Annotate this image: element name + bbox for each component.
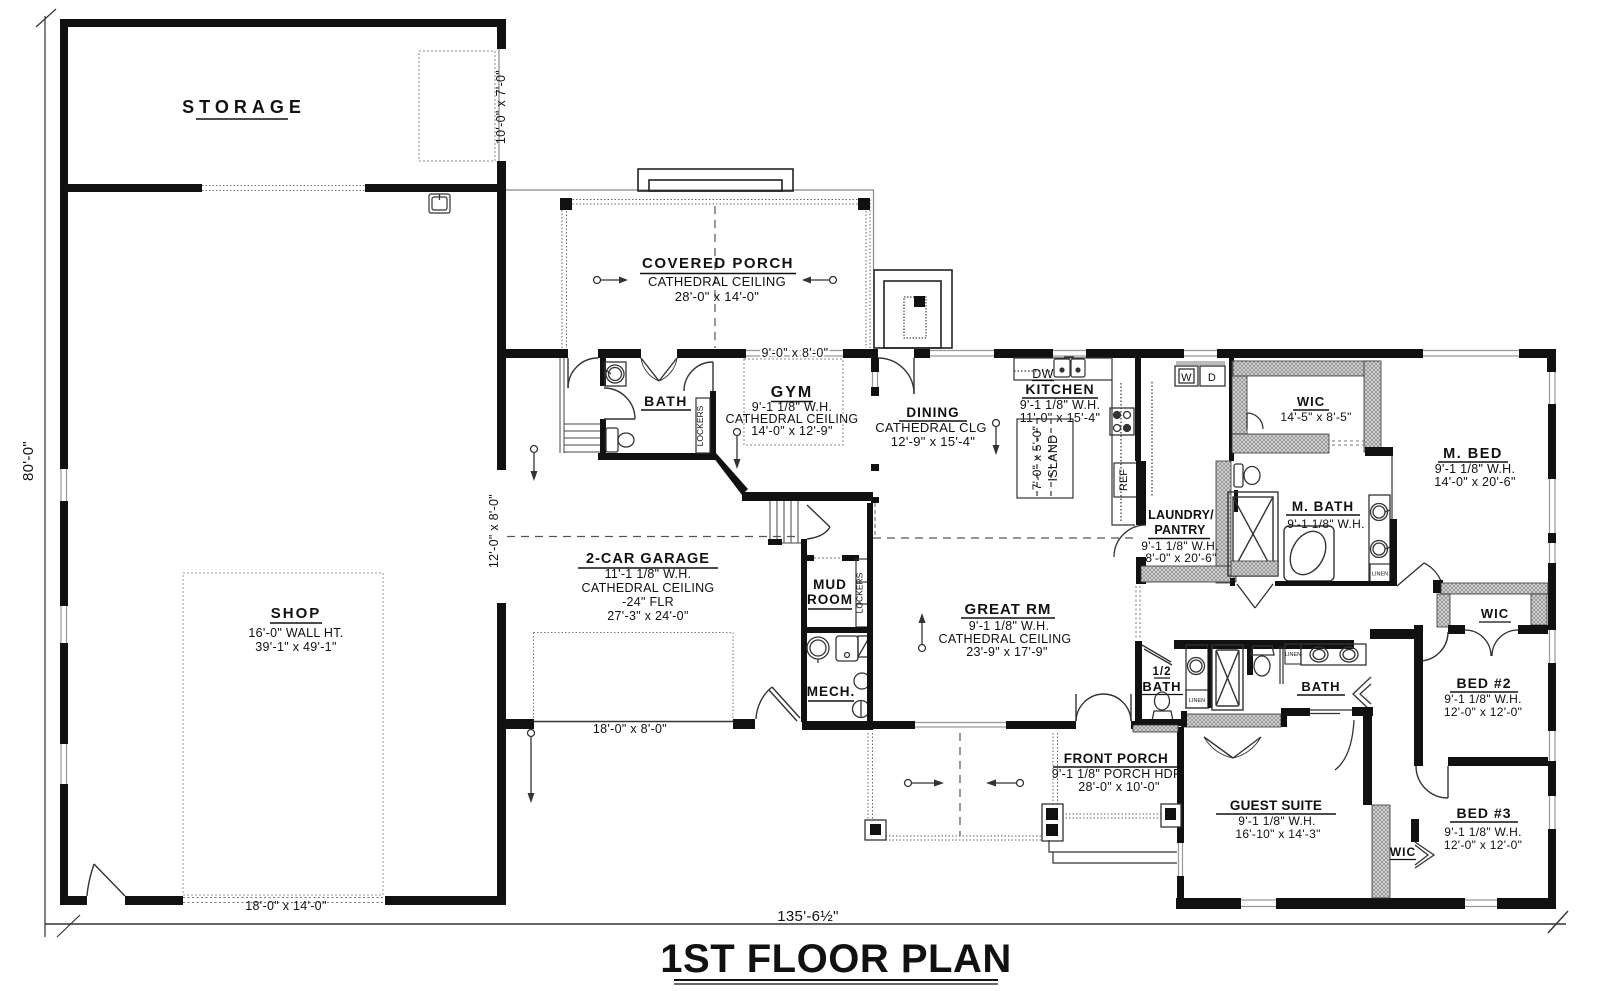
svg-text:9'-1 1/8" W.H.: 9'-1 1/8" W.H. bbox=[1287, 517, 1364, 531]
svg-text:14'-5" x 8'-5": 14'-5" x 8'-5" bbox=[1280, 410, 1351, 424]
svg-text:14'-0" x 20'-6": 14'-0" x 20'-6" bbox=[1434, 475, 1515, 489]
svg-text:14'-0" x 12'-9": 14'-0" x 12'-9" bbox=[751, 424, 832, 438]
svg-text:BATH: BATH bbox=[1301, 679, 1340, 694]
svg-text:11'-0" x 15'-4": 11'-0" x 15'-4" bbox=[1020, 411, 1100, 425]
svg-text:COVERED PORCH: COVERED PORCH bbox=[642, 255, 794, 272]
svg-text:LAUNDRY/: LAUNDRY/ bbox=[1148, 508, 1214, 522]
svg-text:CATHEDRAL CEILING: CATHEDRAL CEILING bbox=[939, 632, 1072, 646]
svg-text:GUEST SUITE: GUEST SUITE bbox=[1230, 798, 1322, 813]
svg-text:28'-0" x 10'-0": 28'-0" x 10'-0" bbox=[1078, 780, 1159, 794]
svg-text:CATHEDRAL CEILING: CATHEDRAL CEILING bbox=[648, 274, 786, 289]
svg-text:9'-1 1/8" W.H.: 9'-1 1/8" W.H. bbox=[1238, 814, 1315, 828]
svg-text:ROOM: ROOM bbox=[807, 592, 853, 607]
svg-text:ISLAND: ISLAND bbox=[1046, 435, 1060, 482]
svg-text:9'-1 1/8" W.H.: 9'-1 1/8" W.H. bbox=[969, 619, 1050, 633]
svg-text:MUD: MUD bbox=[813, 577, 847, 592]
svg-text:W: W bbox=[1181, 372, 1192, 384]
svg-text:28'-0" x 14'-0": 28'-0" x 14'-0" bbox=[675, 289, 760, 304]
svg-text:WIC: WIC bbox=[1481, 606, 1509, 621]
svg-text:12'-0" x 12'-0": 12'-0" x 12'-0" bbox=[1444, 705, 1522, 719]
svg-text:D: D bbox=[1208, 372, 1216, 384]
svg-text:LINEN: LINEN bbox=[1285, 652, 1301, 658]
svg-text:BED #2: BED #2 bbox=[1456, 675, 1511, 691]
svg-text:FRONT PORCH: FRONT PORCH bbox=[1064, 751, 1169, 766]
svg-text:REF: REF bbox=[1118, 469, 1130, 491]
svg-text:GREAT RM: GREAT RM bbox=[965, 601, 1052, 618]
svg-text:BED #3: BED #3 bbox=[1456, 805, 1511, 821]
svg-text:16'-10" x 14'-3": 16'-10" x 14'-3" bbox=[1235, 827, 1320, 841]
svg-text:DW: DW bbox=[1032, 367, 1053, 381]
svg-text:CATHEDRAL CLG: CATHEDRAL CLG bbox=[875, 420, 987, 435]
svg-text:LOCKERS: LOCKERS bbox=[695, 405, 705, 446]
svg-text:8'-0" x 20'-6": 8'-0" x 20'-6" bbox=[1145, 551, 1216, 565]
svg-text:LINEN: LINEN bbox=[1372, 572, 1388, 578]
svg-text:10'-0" x 7'-0": 10'-0" x 7'-0" bbox=[494, 70, 508, 144]
svg-text:SHOP: SHOP bbox=[271, 605, 322, 622]
svg-text:M. BED: M. BED bbox=[1443, 446, 1503, 462]
svg-text:80'-0": 80'-0" bbox=[20, 441, 37, 481]
svg-text:12'-9" x 15'-4": 12'-9" x 15'-4" bbox=[891, 434, 976, 449]
svg-text:2-CAR GARAGE: 2-CAR GARAGE bbox=[586, 551, 710, 567]
svg-text:12'-0" x 8'-0": 12'-0" x 8'-0" bbox=[487, 494, 501, 568]
svg-text:39'-1" x 49'-1": 39'-1" x 49'-1" bbox=[255, 640, 336, 654]
svg-text:BATH: BATH bbox=[644, 393, 688, 409]
svg-text:7'-0" x 5'-0": 7'-0" x 5'-0" bbox=[1030, 426, 1044, 490]
svg-text:WIC: WIC bbox=[1297, 394, 1325, 409]
svg-text:9'-1 1/8" W.H.: 9'-1 1/8" W.H. bbox=[1435, 462, 1516, 476]
svg-text:18'-0" x 8'-0": 18'-0" x 8'-0" bbox=[593, 722, 667, 736]
svg-text:MECH.: MECH. bbox=[807, 684, 856, 699]
svg-text:LINEN: LINEN bbox=[1189, 698, 1205, 704]
svg-text:1ST FLOOR PLAN: 1ST FLOOR PLAN bbox=[660, 937, 1011, 981]
svg-text:LOCKERS: LOCKERS bbox=[855, 572, 865, 613]
svg-text:23'-9" x 17'-9": 23'-9" x 17'-9" bbox=[966, 645, 1047, 659]
svg-text:WIC: WIC bbox=[1390, 845, 1416, 859]
svg-text:9'-1 1/8" W.H.: 9'-1 1/8" W.H. bbox=[1444, 692, 1521, 706]
svg-text:18'-0" x 14'-0": 18'-0" x 14'-0" bbox=[245, 899, 326, 913]
svg-text:GYM: GYM bbox=[771, 384, 813, 401]
svg-text:KITCHEN: KITCHEN bbox=[1025, 381, 1094, 397]
svg-text:M. BATH: M. BATH bbox=[1292, 499, 1354, 514]
svg-text:27'-3" x 24'-0": 27'-3" x 24'-0" bbox=[607, 609, 688, 623]
svg-text:9'-1 1/8" W.H.: 9'-1 1/8" W.H. bbox=[1020, 398, 1101, 412]
svg-text:16'-0" WALL HT.: 16'-0" WALL HT. bbox=[248, 626, 343, 640]
svg-text:9'-1 1/8" PORCH HDR: 9'-1 1/8" PORCH HDR bbox=[1052, 767, 1183, 781]
svg-text:9'-0" x 8'-0": 9'-0" x 8'-0" bbox=[762, 346, 829, 360]
svg-text:CATHEDRAL CEILING: CATHEDRAL CEILING bbox=[582, 581, 715, 595]
svg-text:DINING: DINING bbox=[906, 405, 959, 420]
svg-text:1/2: 1/2 bbox=[1153, 666, 1172, 678]
svg-text:-24" FLR: -24" FLR bbox=[622, 595, 674, 609]
svg-text:PANTRY: PANTRY bbox=[1154, 523, 1206, 537]
svg-text:12'-0" x 12'-0": 12'-0" x 12'-0" bbox=[1444, 838, 1522, 852]
svg-text:9'-1 1/8" W.H.: 9'-1 1/8" W.H. bbox=[1444, 825, 1521, 839]
svg-text:11'-1 1/8" W.H.: 11'-1 1/8" W.H. bbox=[605, 567, 692, 581]
svg-text:135'-6½": 135'-6½" bbox=[777, 908, 838, 925]
svg-text:STORAGE: STORAGE bbox=[182, 97, 306, 117]
